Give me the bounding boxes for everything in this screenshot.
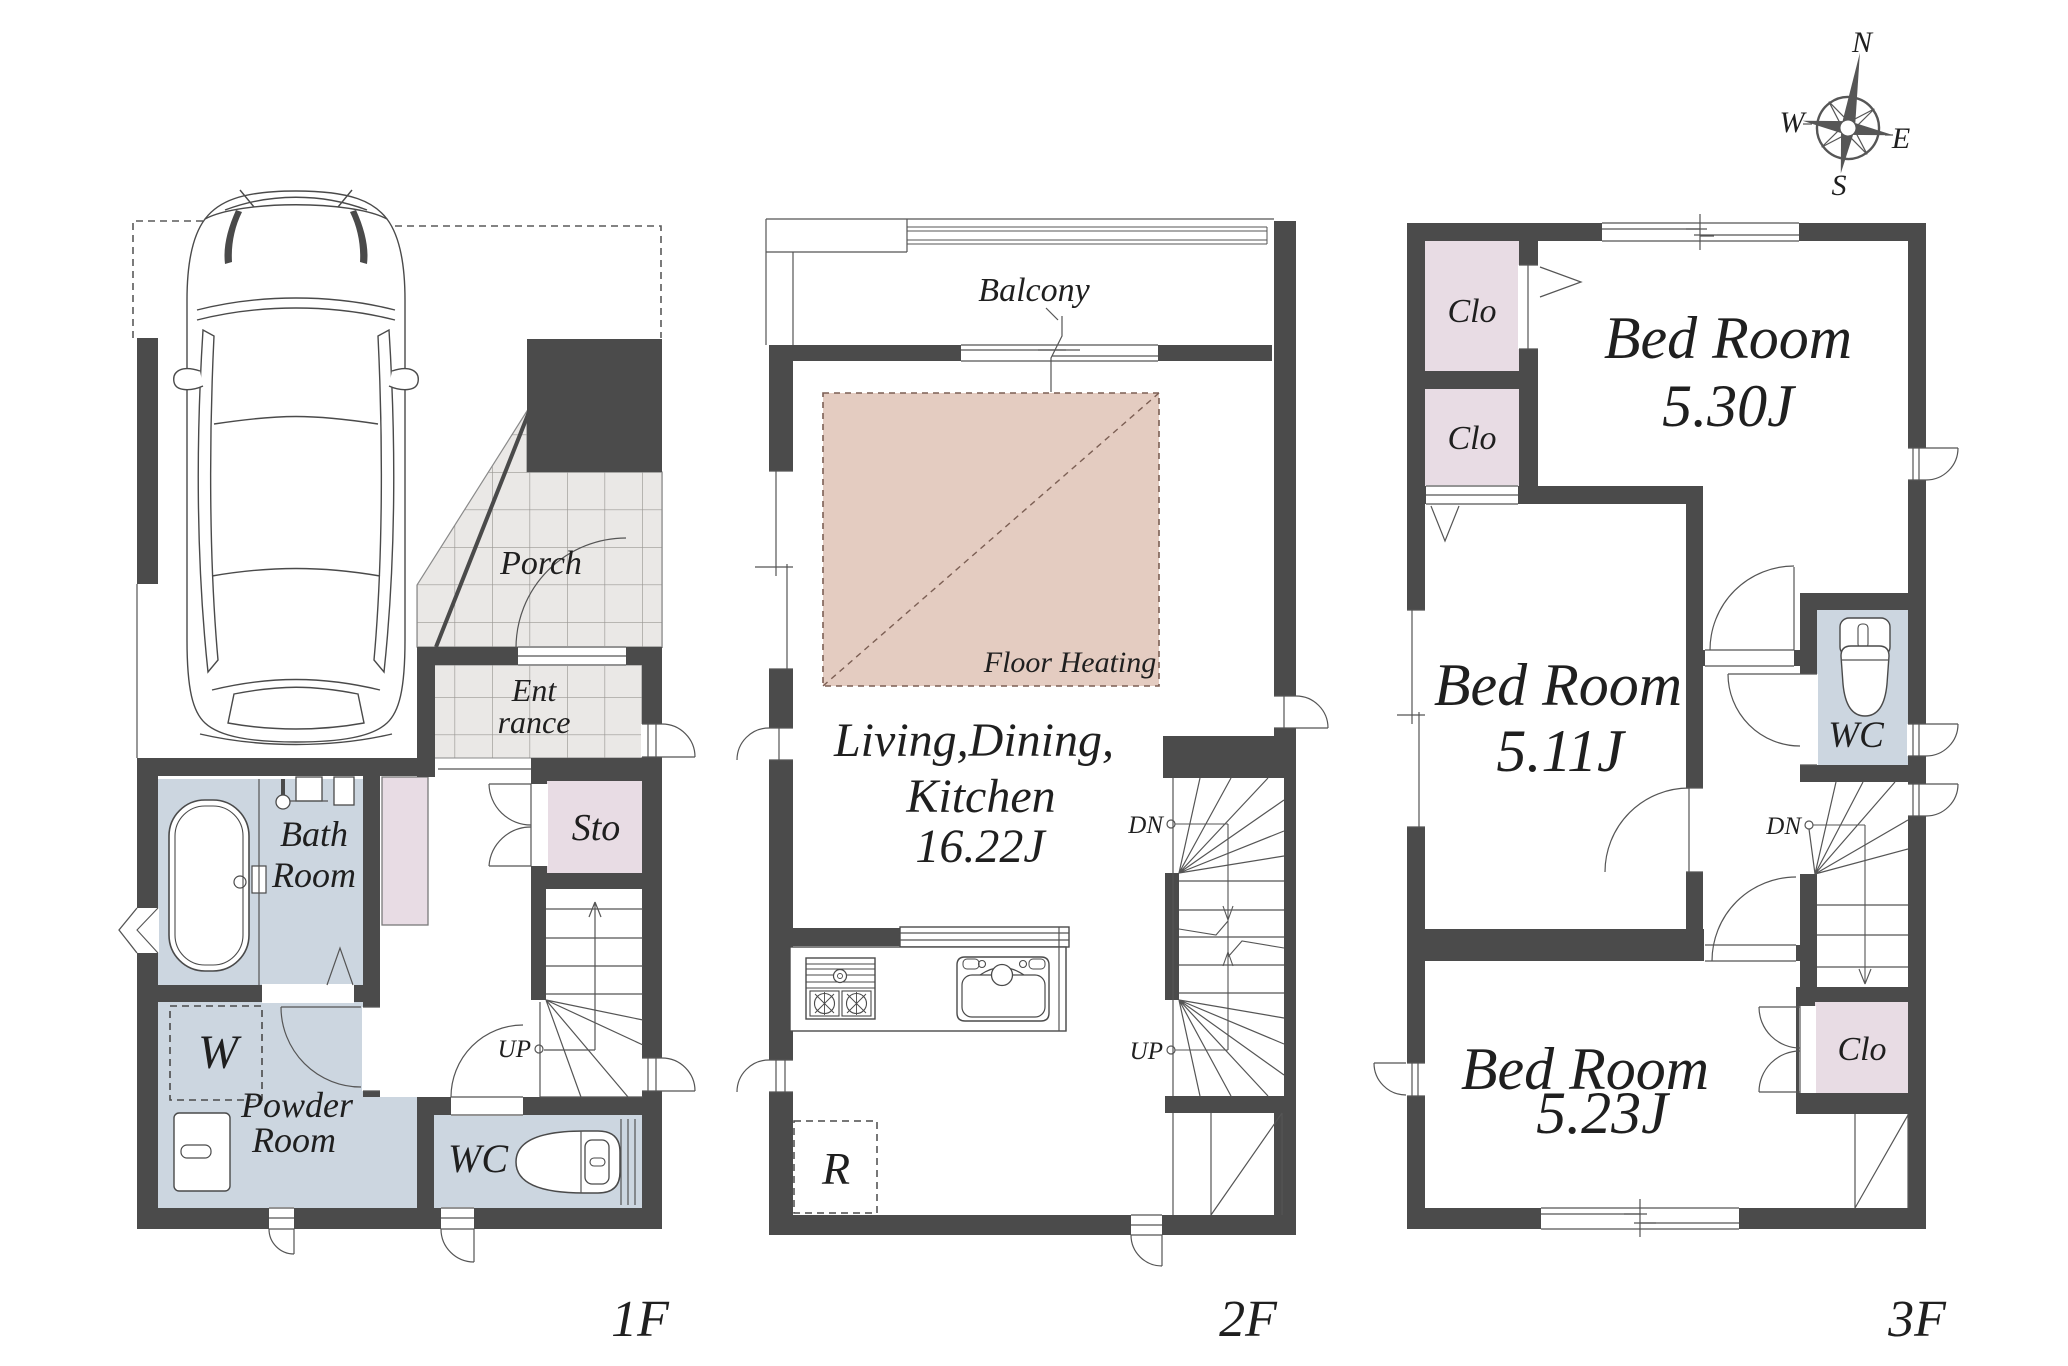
svg-text:Floor Heating: Floor Heating bbox=[983, 646, 1157, 679]
svg-text:N: N bbox=[1851, 26, 1874, 59]
svg-text:1F: 1F bbox=[611, 1291, 670, 1348]
svg-text:R: R bbox=[821, 1143, 850, 1194]
svg-text:Room: Room bbox=[251, 1120, 336, 1160]
svg-text:Bed Room: Bed Room bbox=[1604, 305, 1852, 371]
svg-text:Clo: Clo bbox=[1447, 420, 1496, 457]
svg-text:S: S bbox=[1832, 169, 1847, 202]
svg-text:Sto: Sto bbox=[572, 807, 621, 849]
svg-text:Room: Room bbox=[271, 855, 356, 895]
svg-text:UP: UP bbox=[1130, 1038, 1163, 1065]
svg-text:Ent: Ent bbox=[511, 672, 558, 708]
svg-text:Powder: Powder bbox=[240, 1085, 354, 1125]
svg-text:Bed Room: Bed Room bbox=[1434, 652, 1682, 718]
svg-text:Bath: Bath bbox=[280, 814, 348, 854]
svg-text:DN: DN bbox=[1765, 813, 1802, 840]
svg-text:Living,Dining,: Living,Dining, bbox=[833, 714, 1114, 767]
svg-text:Porch: Porch bbox=[499, 545, 582, 582]
svg-text:Kitchen: Kitchen bbox=[905, 770, 1055, 823]
svg-text:5.11J: 5.11J bbox=[1496, 718, 1626, 784]
svg-text:DN: DN bbox=[1127, 812, 1164, 839]
svg-text:Clo: Clo bbox=[1447, 293, 1496, 330]
svg-text:Balcony: Balcony bbox=[978, 272, 1090, 309]
svg-text:E: E bbox=[1891, 122, 1910, 155]
svg-text:5.30J: 5.30J bbox=[1662, 373, 1796, 439]
svg-text:WC: WC bbox=[448, 1136, 509, 1181]
svg-text:UP: UP bbox=[498, 1036, 531, 1063]
svg-text:rance: rance bbox=[498, 704, 571, 740]
svg-text:16.22J: 16.22J bbox=[915, 820, 1047, 873]
svg-text:5.23J: 5.23J bbox=[1536, 1080, 1670, 1146]
svg-text:W: W bbox=[1780, 106, 1808, 139]
svg-text:W: W bbox=[198, 1026, 242, 1079]
svg-text:Clo: Clo bbox=[1837, 1031, 1886, 1068]
svg-text:3F: 3F bbox=[1887, 1291, 1947, 1348]
svg-text:WC: WC bbox=[1828, 715, 1885, 756]
svg-text:2F: 2F bbox=[1219, 1291, 1278, 1348]
